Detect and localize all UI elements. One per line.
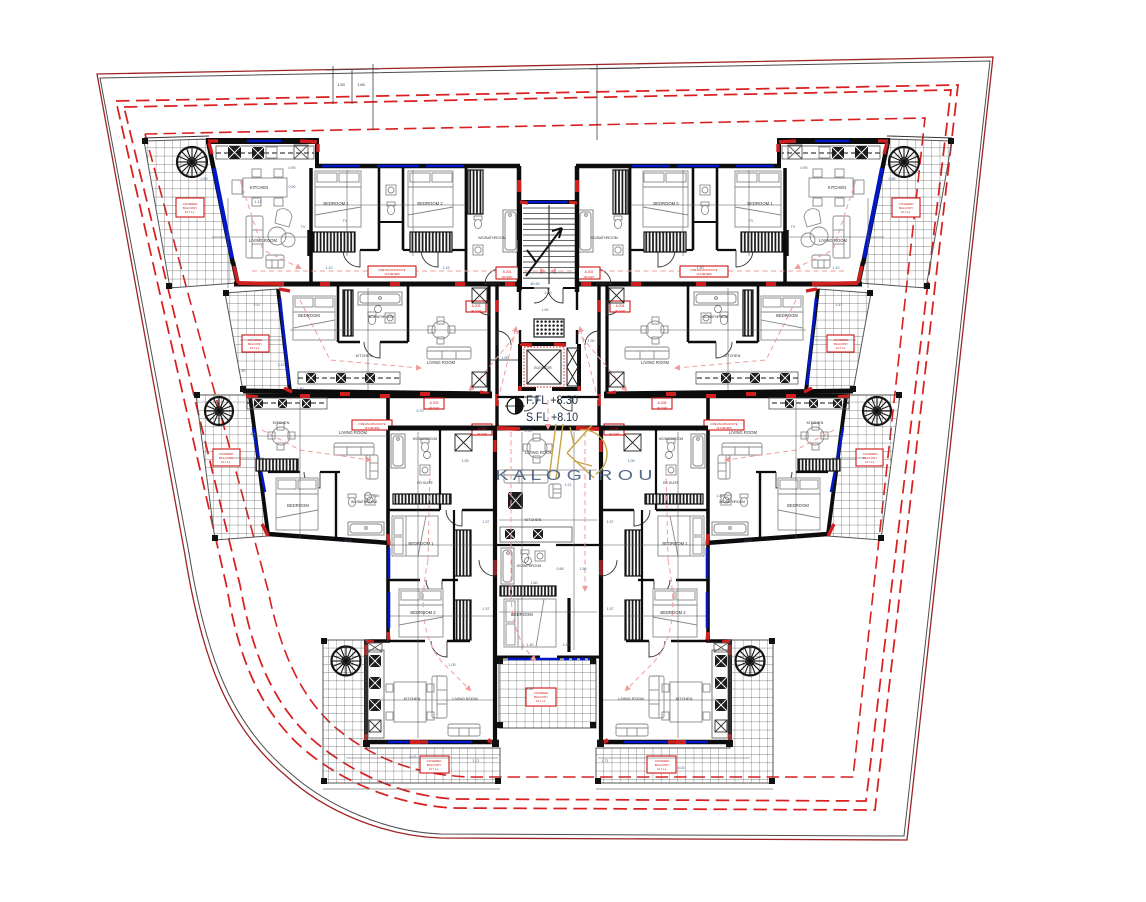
svg-text:80.90: 80.90 (531, 282, 540, 286)
svg-text:LIVING ROOM: LIVING ROOM (452, 697, 477, 701)
svg-text:BALCONY: BALCONY (863, 456, 877, 460)
svg-text:WC/BATHROOM: WC/BATHROOM (659, 437, 684, 441)
svg-text:TV: TV (301, 225, 306, 229)
svg-text:1.90: 1.90 (297, 387, 304, 391)
svg-text:BEDROOM: BEDROOM (776, 313, 798, 318)
svg-text:146 SQFT: 146 SQFT (470, 310, 482, 313)
svg-text:BEDROOM 1: BEDROOM 1 (747, 201, 773, 206)
svg-text:TV: TV (791, 225, 796, 229)
svg-text:8.00: 8.00 (345, 539, 352, 543)
svg-text:BEDROOM 1: BEDROOM 1 (323, 201, 349, 206)
svg-text:16.3 METERS: 16.3 METERS (696, 273, 712, 276)
svg-text:EN SUITE: EN SUITE (417, 481, 433, 485)
svg-text:1.10: 1.10 (833, 266, 840, 270)
svg-text:WC/BATHROOM: WC/BATHROOM (368, 315, 394, 319)
svg-text:146 SQFT: 146 SQFT (476, 433, 488, 436)
svg-text:10.7 s.p.: 10.7 s.p. (429, 767, 439, 771)
svg-text:1.80: 1.80 (717, 494, 724, 498)
svg-text:10.7 s.p.: 10.7 s.p. (901, 210, 911, 214)
svg-text:FIRE ESCAPE ROUTE: FIRE ESCAPE ROUTE (711, 422, 738, 426)
svg-text:BEDROOM 1: BEDROOM 1 (408, 541, 434, 546)
svg-text:KITCHEN: KITCHEN (356, 354, 373, 358)
svg-text:1.50: 1.50 (580, 567, 587, 571)
svg-text:146 SQFT: 146 SQFT (614, 310, 626, 313)
svg-text:BEDROOM: BEDROOM (787, 503, 809, 508)
svg-text:BALCONY: BALCONY (219, 456, 233, 460)
svg-text:WC/BATHROOM: WC/BATHROOM (413, 437, 438, 441)
svg-text:BALCONY: BALCONY (655, 763, 669, 767)
svg-text:146 SQFT: 146 SQFT (428, 407, 440, 410)
svg-text:WC/BATHROOM: WC/BATHROOM (517, 564, 542, 568)
svg-text:1.71: 1.71 (473, 759, 480, 763)
svg-text:3.10: 3.10 (278, 363, 285, 367)
svg-text:1.30: 1.30 (697, 266, 704, 270)
svg-text:KITCHEN: KITCHEN (250, 185, 268, 190)
svg-text:WC/BATHROOM: WC/BATHROOM (351, 500, 377, 504)
svg-text:16.3 METERS: 16.3 METERS (716, 427, 732, 430)
svg-text:1.50: 1.50 (502, 356, 509, 360)
svg-text:1.05: 1.05 (462, 459, 469, 463)
svg-text:1.71: 1.71 (602, 759, 609, 763)
svg-text:1.50: 1.50 (337, 82, 346, 87)
svg-text:WC/BATHROOM: WC/BATHROOM (590, 236, 617, 240)
svg-text:A.202: A.202 (585, 270, 594, 274)
svg-text:0.90: 0.90 (289, 185, 296, 189)
svg-text:A.206: A.206 (610, 427, 619, 431)
svg-text:1.40: 1.40 (563, 643, 570, 647)
svg-text:1.40: 1.40 (527, 643, 534, 647)
svg-text:2.85: 2.85 (201, 177, 208, 181)
svg-text:LIVING ROOM: LIVING ROOM (339, 430, 367, 435)
svg-text:FIRE ESCAPE ROUTE: FIRE ESCAPE ROUTE (379, 268, 406, 272)
svg-text:2.57: 2.57 (254, 303, 261, 307)
svg-text:LIVING ROOM: LIVING ROOM (729, 430, 757, 435)
svg-text:1.13: 1.13 (255, 200, 262, 204)
svg-text:10.7 s.p.: 10.7 s.p. (185, 210, 195, 214)
svg-text:A.203: A.203 (430, 401, 439, 405)
svg-text:146 SQFT: 146 SQFT (583, 276, 595, 279)
svg-text:BEDROOM 2: BEDROOM 2 (410, 610, 436, 615)
svg-text:FIRE ESCAPE ROUTE: FIRE ESCAPE ROUTE (691, 268, 718, 272)
svg-text:4.40: 4.40 (251, 432, 258, 436)
svg-text:KITCHEN: KITCHEN (525, 518, 542, 522)
svg-text:A.201: A.201 (503, 270, 512, 274)
svg-text:1.05: 1.05 (449, 663, 456, 667)
svg-text:1.57: 1.57 (607, 607, 614, 611)
svg-text:2.47: 2.47 (836, 303, 843, 307)
svg-text:KITCHEN: KITCHEN (273, 421, 290, 425)
svg-text:2.85: 2.85 (889, 177, 896, 181)
svg-text:BALCONY: BALCONY (248, 342, 262, 346)
svg-text:F.FL +8.30: F.FL +8.30 (526, 395, 578, 407)
svg-text:1.60: 1.60 (531, 581, 538, 585)
svg-text:BALCONY: BALCONY (834, 342, 848, 346)
svg-text:0.70: 0.70 (417, 409, 424, 413)
svg-text:LIVING ROOM: LIVING ROOM (525, 450, 553, 455)
svg-text:ELEVATOR: ELEVATOR (534, 366, 552, 370)
svg-text:10.7 s.p.: 10.7 s.p. (221, 460, 231, 464)
svg-text:8.80: 8.80 (527, 687, 534, 691)
svg-text:A.204: A.204 (616, 304, 625, 308)
svg-text:16.3 METERS: 16.3 METERS (384, 273, 400, 276)
svg-text:8.00: 8.00 (745, 539, 752, 543)
svg-text:LIVING ROOM: LIVING ROOM (819, 238, 847, 243)
svg-text:1.90: 1.90 (542, 308, 549, 312)
svg-text:BEDROOM 1: BEDROOM 1 (662, 541, 688, 546)
svg-text:1.05: 1.05 (628, 459, 635, 463)
svg-text:BALCONY: BALCONY (427, 763, 441, 767)
svg-text:10.7 s.p.: 10.7 s.p. (836, 346, 846, 350)
svg-text:BEDROOM 2: BEDROOM 2 (660, 610, 686, 615)
svg-text:1.50: 1.50 (588, 339, 595, 343)
svg-text:FIRE ESCAPE ROUTE: FIRE ESCAPE ROUTE (359, 422, 386, 426)
svg-text:1.10: 1.10 (326, 266, 333, 270)
svg-text:10.7 s.p.: 10.7 s.p. (865, 460, 875, 464)
svg-text:1.57: 1.57 (607, 520, 614, 524)
svg-text:KITCHEN: KITCHEN (724, 354, 741, 358)
svg-text:BALCONY: BALCONY (534, 695, 548, 699)
svg-text:16.3 METERS: 16.3 METERS (364, 427, 380, 430)
svg-text:BEDROOM: BEDROOM (511, 612, 533, 617)
svg-text:8.03: 8.03 (678, 766, 685, 770)
svg-text:BALCONY: BALCONY (899, 206, 913, 210)
svg-text:LIVING ROOM: LIVING ROOM (249, 238, 277, 243)
svg-text:1.23: 1.23 (525, 429, 532, 433)
svg-text:146 SQFT: 146 SQFT (656, 407, 668, 410)
svg-text:K A L O G I R O U: K A L O G I R O U (496, 467, 653, 484)
svg-text:10.7 s.p.: 10.7 s.p. (250, 346, 260, 350)
svg-text:TV: TV (343, 219, 348, 223)
svg-text:KITCHEN: KITCHEN (807, 421, 824, 425)
svg-text:0.90: 0.90 (801, 166, 808, 170)
svg-text:1.80: 1.80 (357, 82, 366, 87)
svg-text:2.90: 2.90 (545, 291, 552, 295)
svg-text:1.80: 1.80 (373, 494, 380, 498)
svg-text:A.205: A.205 (658, 401, 667, 405)
svg-text:146 SQFT: 146 SQFT (501, 276, 513, 279)
svg-text:KITCHEN: KITCHEN (828, 185, 846, 190)
svg-text:0.88: 0.88 (557, 567, 564, 571)
svg-text:EN SUITE: EN SUITE (663, 481, 679, 485)
svg-text:BALCONY: BALCONY (183, 206, 197, 210)
svg-text:BEDROOM: BEDROOM (298, 313, 320, 318)
svg-text:BEDROOM: BEDROOM (287, 503, 309, 508)
svg-text:S.FL +8.10: S.FL +8.10 (526, 412, 578, 424)
svg-text:1.90: 1.90 (239, 369, 246, 373)
svg-text:0.90: 0.90 (289, 166, 296, 170)
svg-text:BEDROOM 2: BEDROOM 2 (417, 201, 443, 206)
svg-text:146 SQFT: 146 SQFT (608, 433, 620, 436)
svg-text:10.7 s.p.: 10.7 s.p. (657, 767, 667, 771)
svg-text:10.7 s.p.: 10.7 s.p. (536, 699, 546, 703)
svg-text:WC/BATHROOM: WC/BATHROOM (478, 236, 505, 240)
svg-text:KITCHEN: KITCHEN (676, 697, 693, 701)
svg-text:LIVING ROOM: LIVING ROOM (618, 697, 643, 701)
svg-text:BEDROOM 3: BEDROOM 3 (653, 201, 679, 206)
svg-text:LIVING ROOM: LIVING ROOM (427, 360, 455, 365)
svg-text:TV: TV (749, 219, 754, 223)
svg-text:A.205: A.205 (478, 427, 487, 431)
svg-text:1.15: 1.15 (443, 266, 450, 270)
svg-text:WC/BATHROOM: WC/BATHROOM (702, 315, 728, 319)
svg-text:1.57: 1.57 (483, 607, 490, 611)
svg-text:LIVING ROOM: LIVING ROOM (641, 360, 669, 365)
svg-text:WC/BATHROOM: WC/BATHROOM (719, 500, 745, 504)
svg-text:KITCHEN: KITCHEN (404, 697, 421, 701)
svg-text:1.57: 1.57 (483, 520, 490, 524)
svg-text:A.203: A.203 (472, 304, 481, 308)
svg-text:8.03: 8.03 (410, 755, 417, 759)
